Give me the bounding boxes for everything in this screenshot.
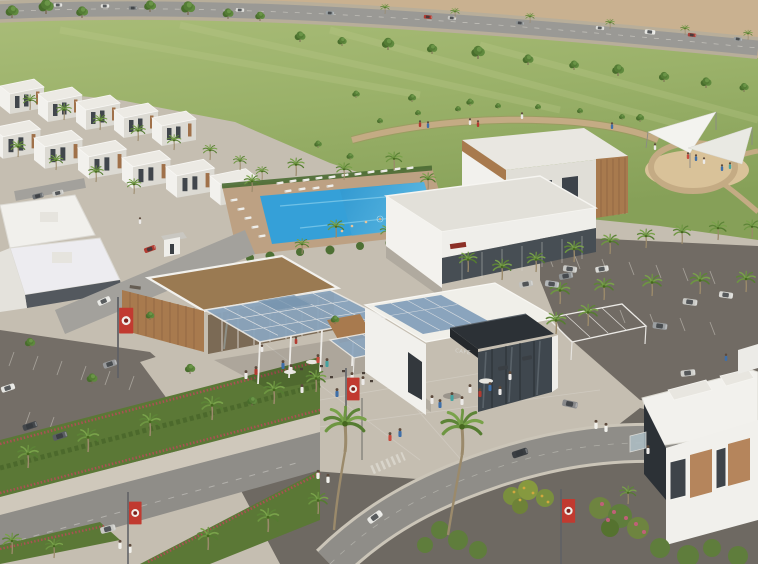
pedestrian [721, 164, 723, 171]
pedestrian [325, 358, 328, 367]
pedestrian [468, 384, 471, 393]
pedestrian-robed [604, 423, 607, 432]
pedestrian [469, 118, 471, 125]
pedestrian [695, 154, 697, 161]
pedestrian [478, 388, 481, 397]
pedestrian [295, 337, 298, 344]
pedestrian [244, 370, 247, 379]
wood-panel [728, 438, 750, 486]
pedestrian [419, 120, 421, 127]
pedestrian [281, 360, 284, 369]
car [236, 8, 245, 12]
pedestrian-robed [326, 474, 329, 483]
pedestrian-robed [316, 470, 319, 479]
pedestrian [654, 143, 656, 150]
pedestrian [703, 157, 705, 164]
parasol [306, 360, 318, 364]
pedestrian [725, 354, 728, 361]
pedestrian [430, 395, 433, 404]
pedestrian [398, 428, 401, 437]
townhouse [34, 130, 82, 169]
pedestrian [611, 122, 613, 129]
townhouse [114, 103, 158, 138]
townhouse [122, 150, 170, 189]
villa-window [670, 458, 686, 500]
pedestrian [477, 120, 479, 127]
townhouse [76, 95, 120, 130]
wood-panel [690, 449, 712, 498]
pedestrian [300, 384, 303, 393]
car [129, 6, 137, 10]
pedestrian [388, 432, 391, 441]
car [54, 3, 62, 7]
pedestrian [498, 386, 501, 395]
aerial-render-scene: Aerial rendering of a residential commun… [0, 0, 758, 564]
pedestrian [646, 445, 649, 454]
screenshot-root: Aerial rendering of a residential commun… [0, 0, 758, 564]
corner-column [552, 335, 558, 392]
pedestrian [335, 388, 338, 397]
pedestrian [438, 399, 441, 408]
townhouse [0, 79, 44, 114]
car-red [424, 15, 433, 19]
balcony-glass [630, 432, 646, 452]
pedestrian [289, 364, 292, 373]
pedestrian [729, 162, 731, 169]
car [326, 11, 335, 15]
pedestrian [508, 371, 511, 380]
townhouse [166, 159, 214, 198]
pedestrian [521, 112, 523, 119]
pedestrian-robed [594, 420, 597, 429]
pedestrian [488, 382, 491, 391]
pedestrian [460, 396, 463, 405]
pedestrian-robed [118, 540, 121, 549]
car [101, 4, 109, 8]
pedestrian [254, 366, 257, 375]
pedestrian [361, 376, 364, 385]
pedestrian [427, 121, 429, 128]
pedestrian [316, 354, 319, 363]
pedestrian [139, 217, 141, 224]
pedestrian-robed [128, 544, 131, 553]
pedestrian [450, 392, 453, 401]
pedestrian [261, 345, 264, 352]
pedestrian [687, 152, 689, 159]
villa-window [716, 447, 726, 489]
